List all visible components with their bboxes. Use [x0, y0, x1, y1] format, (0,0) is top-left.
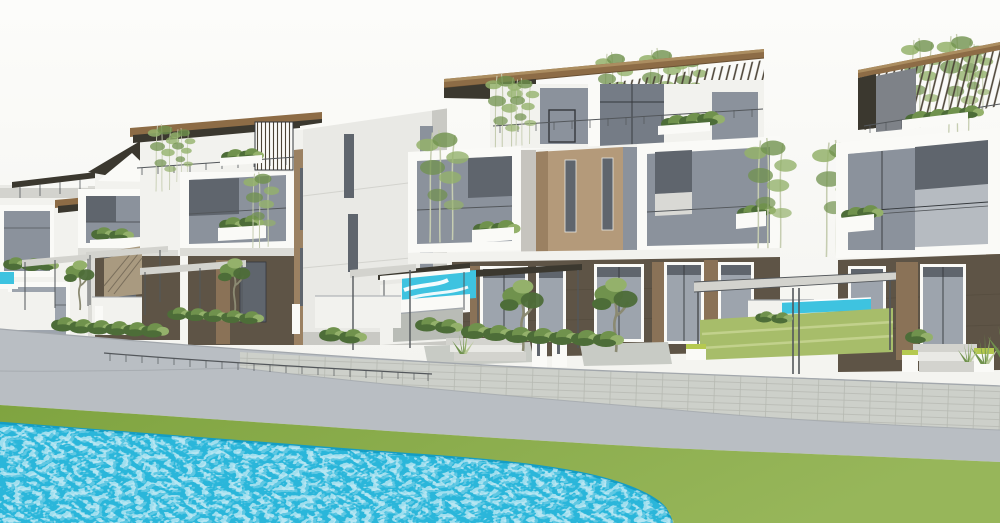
- slot-window: [565, 160, 576, 232]
- balcony-frame: [836, 128, 1000, 258]
- render-canvas: [0, 0, 1000, 523]
- garden-wall: [0, 292, 55, 330]
- entry-steps: [913, 344, 977, 372]
- slot-window: [344, 134, 354, 198]
- mini-pool: [0, 272, 14, 285]
- planter-box: [736, 211, 766, 229]
- glass-panel: [540, 88, 588, 144]
- gate-post: [292, 304, 300, 334]
- duplex-right-balcony: [637, 136, 797, 256]
- entry-court: [580, 342, 672, 366]
- garden-wall: [315, 296, 401, 328]
- duplex-tan-wall: [536, 147, 623, 257]
- slot-window: [348, 214, 358, 272]
- balcony-frame: [180, 172, 295, 250]
- villa-development-rendering: [0, 0, 1000, 523]
- slot-window: [602, 158, 613, 230]
